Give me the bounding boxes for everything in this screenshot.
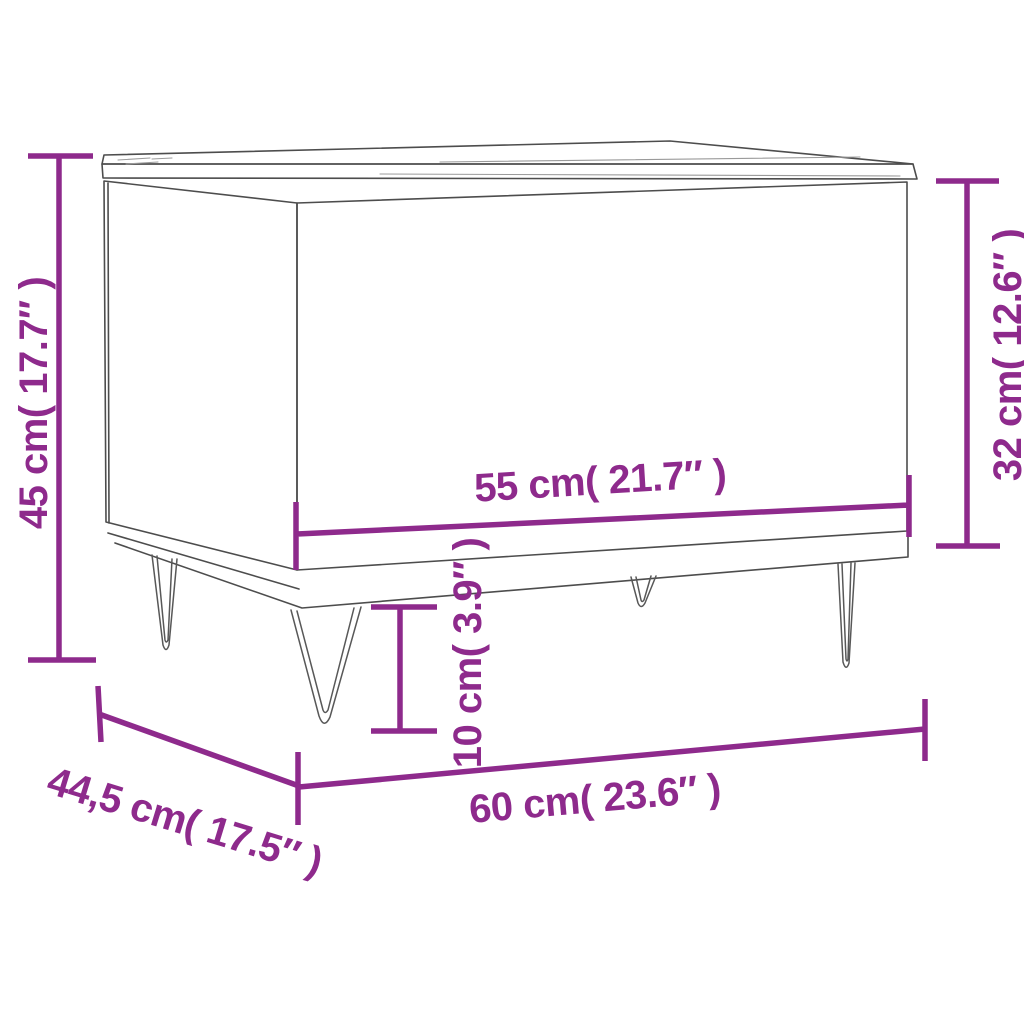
hairpin-leg-front-left xyxy=(291,607,361,723)
table-body xyxy=(104,181,908,608)
dimension-line xyxy=(371,607,437,731)
dimension-total-height: 45 cm( 17.7″ ) xyxy=(12,156,96,660)
tabletop-top-face xyxy=(102,141,913,164)
table-drawing xyxy=(102,141,917,723)
dimension-body-height: 32 cm( 12.6″ ) xyxy=(936,181,1024,546)
dimension-label-body-height: 32 cm( 12.6″ ) xyxy=(986,229,1024,481)
dimension-label-leg-height: 10 cm( 3.9″ ) xyxy=(446,538,490,769)
legs xyxy=(152,555,855,723)
base-band xyxy=(108,531,908,608)
dimension-total-width: 60 cm( 23.6″ ) xyxy=(298,699,925,832)
dimension-label-top-width: 55 cm( 21.7″ ) xyxy=(473,451,728,510)
tabletop-grain-lines xyxy=(118,157,900,176)
dimension-diagram: 45 cm( 17.7″ ) 32 cm( 12.6″ ) 55 cm( 21.… xyxy=(0,0,1024,1024)
dimension-label-total-height: 45 cm( 17.7″ ) xyxy=(12,277,56,529)
body-left-edge-inner xyxy=(108,183,109,523)
dimension-label-total-width: 60 cm( 23.6″ ) xyxy=(467,766,722,832)
body-left-panel xyxy=(104,181,297,570)
dimension-label-depth: 44,5 cm( 17.5″ ) xyxy=(42,759,327,884)
dimension-annotations: 45 cm( 17.7″ ) 32 cm( 12.6″ ) 55 cm( 21.… xyxy=(12,156,1024,884)
hairpin-leg-back-left xyxy=(152,555,177,650)
tabletop-front-edge xyxy=(102,164,917,179)
dimension-depth: 44,5 cm( 17.5″ ) xyxy=(42,686,327,884)
dimension-leg-height: 10 cm( 3.9″ ) xyxy=(371,538,490,769)
dimension-line xyxy=(98,686,299,786)
dimension-top-width: 55 cm( 21.7″ ) xyxy=(296,451,909,570)
tabletop xyxy=(102,141,917,179)
hairpin-leg-front-right xyxy=(838,563,855,667)
